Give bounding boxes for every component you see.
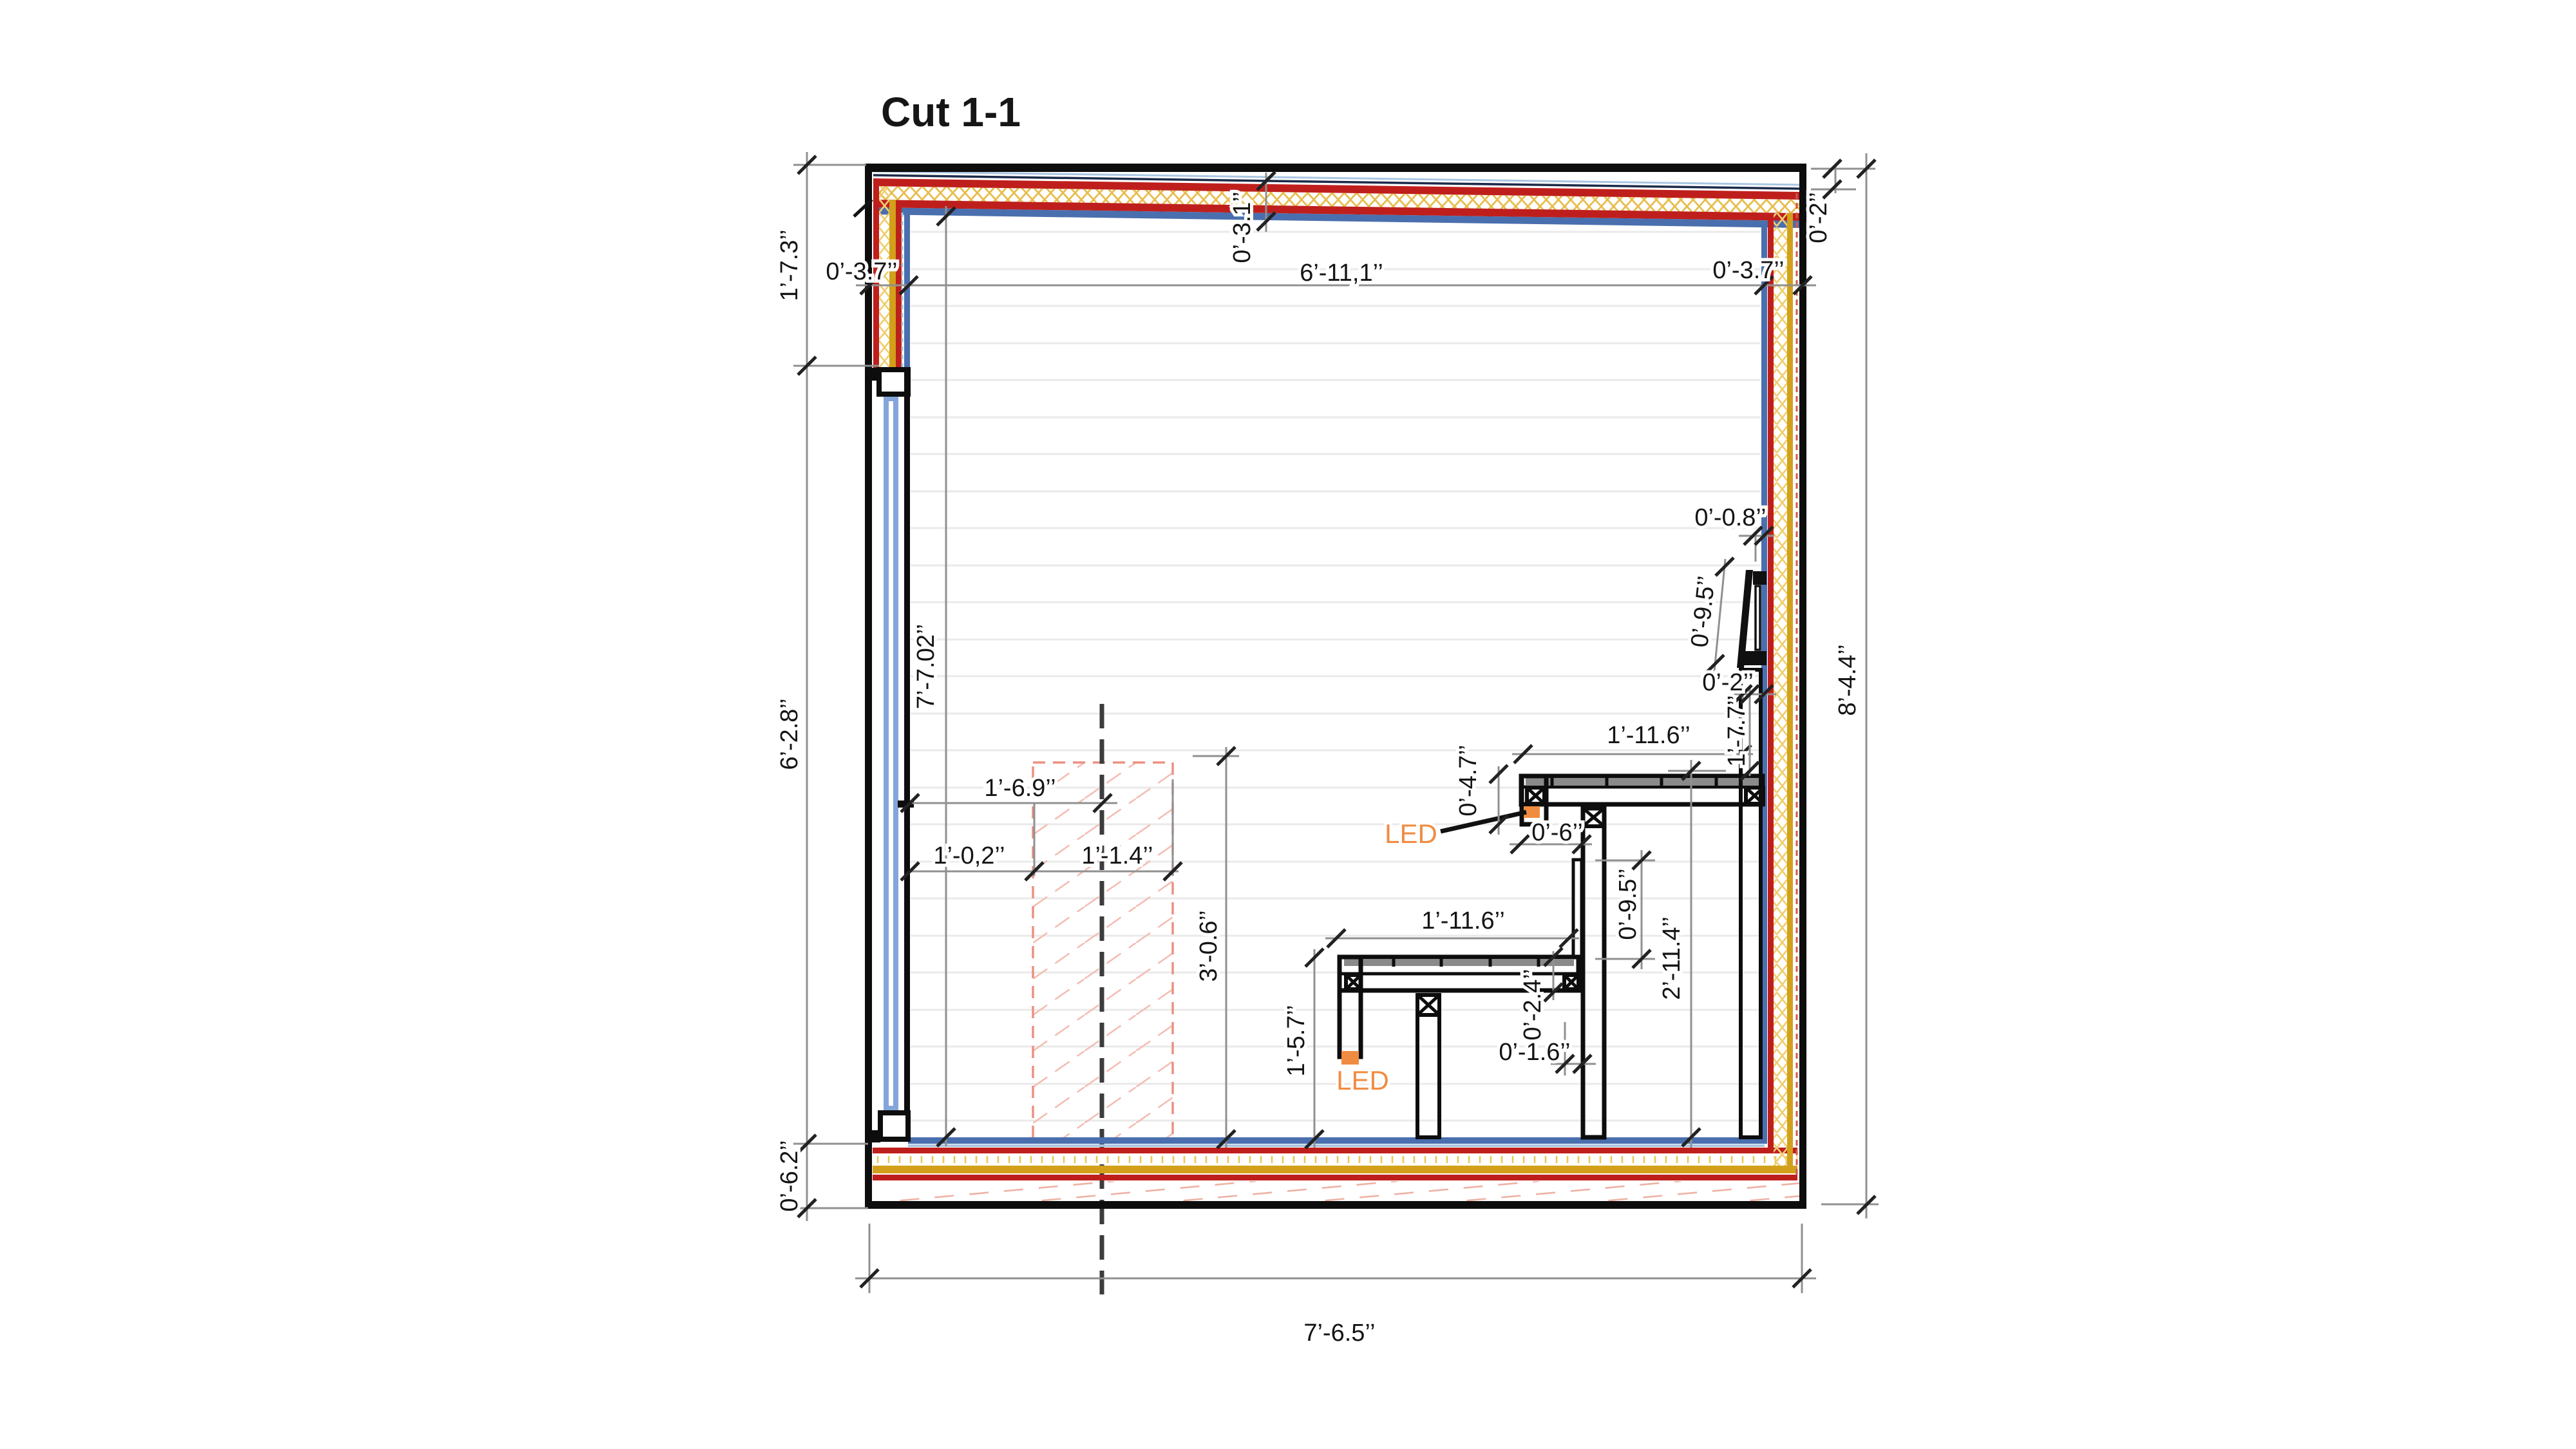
svg-text:0’-6’’: 0’-6’’ — [1531, 819, 1583, 846]
svg-text:LED: LED — [1336, 1065, 1389, 1095]
svg-text:7’-7.02’’: 7’-7.02’’ — [913, 624, 940, 709]
svg-text:0’-9.5’’: 0’-9.5’’ — [1615, 868, 1642, 940]
svg-text:3’-0.6’’: 3’-0.6’’ — [1195, 910, 1222, 981]
svg-text:1’-11.6’’: 1’-11.6’’ — [1607, 722, 1690, 749]
svg-text:0’-3.7’’: 0’-3.7’’ — [1712, 257, 1784, 284]
svg-text:1’-0,2’’: 1’-0,2’’ — [933, 842, 1005, 869]
svg-text:7’-6.5’’: 7’-6.5’’ — [1303, 1320, 1375, 1347]
svg-text:0’-2’’: 0’-2’’ — [1805, 192, 1832, 243]
svg-text:LED: LED — [1385, 819, 1437, 849]
svg-text:0’-3.7’’: 0’-3.7’’ — [826, 258, 897, 285]
svg-text:6’-11,1’’: 6’-11,1’’ — [1300, 260, 1383, 287]
svg-text:0’-6.2’’: 0’-6.2’’ — [776, 1140, 803, 1211]
svg-text:1’-5.7’’: 1’-5.7’’ — [1283, 1005, 1310, 1076]
svg-text:0’-2.4’’: 0’-2.4’’ — [1519, 969, 1546, 1040]
svg-text:1’-7.3’’: 1’-7.3’’ — [776, 229, 803, 301]
svg-text:8’-4.4’’: 8’-4.4’’ — [1834, 644, 1861, 715]
svg-text:1’-6.9’’: 1’-6.9’’ — [984, 775, 1056, 802]
svg-text:2’-11.4’’: 2’-11.4’’ — [1658, 916, 1685, 1000]
svg-text:1’-11.6’’: 1’-11.6’’ — [1421, 907, 1505, 934]
svg-text:0’-3.1’’: 0’-3.1’’ — [1229, 191, 1256, 263]
svg-text:Cut 1-1: Cut 1-1 — [881, 89, 1021, 135]
svg-text:6’-2.8’’: 6’-2.8’’ — [776, 698, 803, 770]
svg-text:0’-2’’: 0’-2’’ — [1702, 669, 1754, 696]
svg-text:1’-1.4’’: 1’-1.4’’ — [1081, 842, 1153, 869]
svg-text:0’-4.7’’: 0’-4.7’’ — [1455, 744, 1482, 816]
svg-text:1’-7.7’’: 1’-7.7’’ — [1723, 695, 1750, 766]
svg-text:0’-1.6’’: 0’-1.6’’ — [1499, 1039, 1570, 1066]
svg-text:0’-0.8’’: 0’-0.8’’ — [1694, 504, 1766, 531]
